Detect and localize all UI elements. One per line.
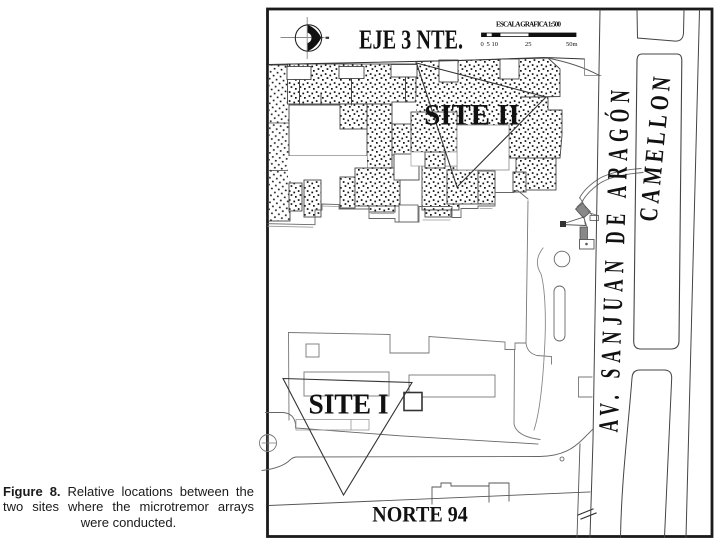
svg-text:25: 25 [525, 41, 532, 48]
svg-text:EJE 3 NTE.: EJE 3 NTE. [359, 26, 463, 55]
svg-text:50m: 50m [566, 41, 578, 48]
svg-text:0: 0 [481, 41, 484, 48]
svg-text:ESCALA GRAFICA 1:500: ESCALA GRAFICA 1:500 [496, 21, 562, 29]
svg-text:10: 10 [492, 41, 499, 48]
svg-text:NORTE 94: NORTE 94 [372, 502, 468, 527]
svg-text:SITE I: SITE I [308, 388, 388, 419]
svg-text:5: 5 [487, 41, 490, 48]
svg-text:SITE II: SITE II [424, 99, 520, 131]
